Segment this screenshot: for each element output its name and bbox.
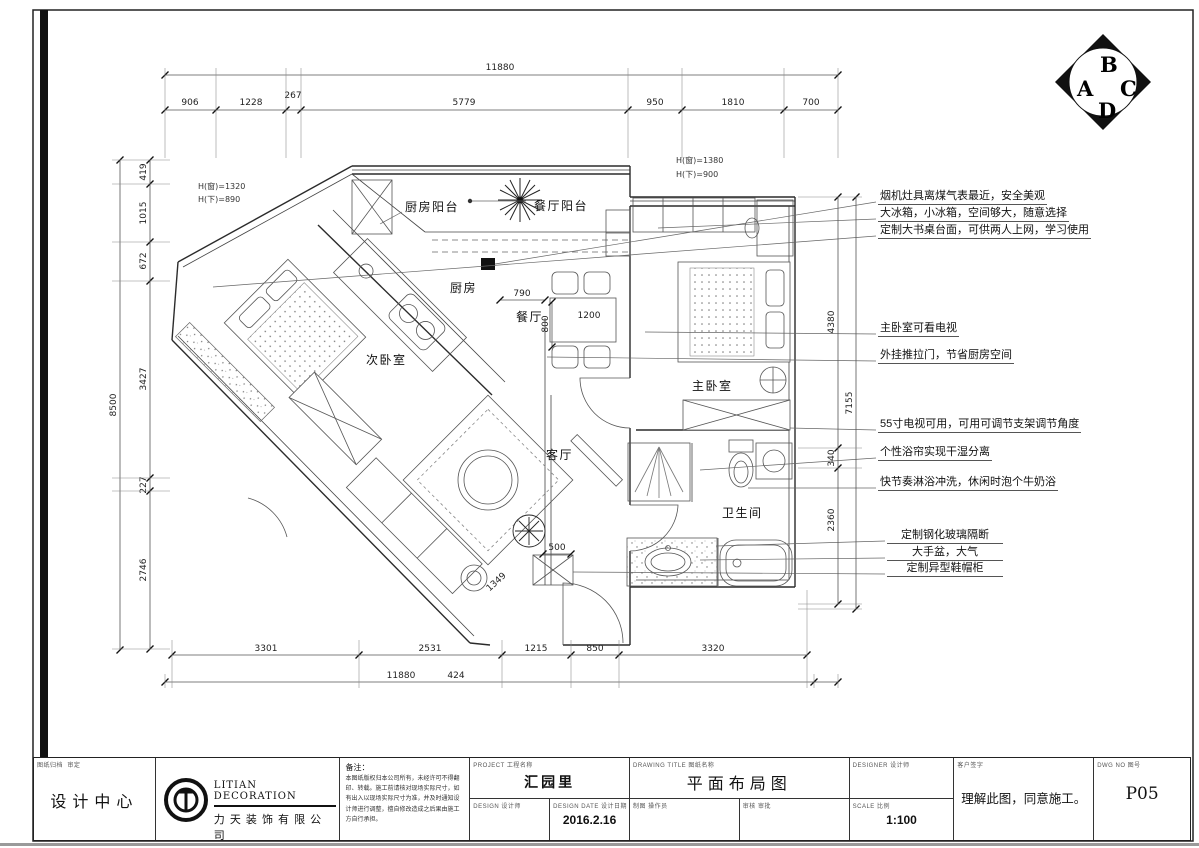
- signature-label: 客户签字: [957, 760, 983, 769]
- wardrobe: [633, 198, 755, 232]
- kitchen-balcony-fixtures: [352, 180, 392, 234]
- dim-right-seg: 2360: [827, 508, 837, 531]
- compass-letter-a: A: [1076, 76, 1094, 101]
- titleblock-scale-cell: DESIGNER 设计师 SCALE 比例 1:100: [850, 758, 955, 840]
- dim-bottom-seg: 3301: [255, 644, 278, 654]
- checker-label: 审核 审批: [743, 801, 771, 810]
- signature-text: 理解此图，同意施工。: [954, 788, 1093, 807]
- scale-label: SCALE 比例: [853, 801, 890, 810]
- dim-right-seg: 340: [827, 449, 837, 466]
- drawing-sheet: A B C D: [0, 0, 1199, 848]
- room-label-master-bedroom: 主卧室: [692, 378, 733, 393]
- annotation-3: 定制大书桌台面，可供两人上网，学习使用: [878, 223, 1091, 239]
- dim-bottom-extra: 424: [447, 671, 464, 681]
- dim-top-total: 11880: [486, 63, 515, 73]
- binding-bar: [40, 10, 48, 757]
- annotation-9: 定制钢化玻璃隔断: [887, 528, 1003, 544]
- dim-top-seg: 906: [181, 98, 198, 108]
- annotation-7: 个性浴帘实现干湿分离: [878, 445, 992, 461]
- window-note: H(窗)=1320: [198, 181, 245, 191]
- dim-bottom-seg: 1215: [525, 644, 548, 654]
- annotation-2: 大冰箱，小冰箱，空间够大，随意选择: [878, 206, 1069, 222]
- dim-right-seg: 4380: [827, 310, 837, 333]
- toilet: [729, 453, 753, 487]
- dim-left-seg: 672: [139, 252, 149, 269]
- dim-left-seg: 2746: [139, 558, 149, 581]
- company-logo: [164, 778, 208, 822]
- sheet-shadow: [0, 843, 1199, 846]
- dim-top-seg: 267: [284, 91, 301, 101]
- design-date: 2016.2.16: [550, 813, 629, 827]
- date-cell: DESIGN DATE 设计日期 2016.2.16: [550, 799, 629, 840]
- toilet-tank: [729, 440, 753, 452]
- dim-bottom-seg: 3320: [702, 644, 725, 654]
- annotation-4: 主卧室可看电视: [878, 321, 959, 337]
- scale-value: 1:100: [850, 813, 954, 827]
- window-note: H(下)=900: [676, 170, 718, 179]
- window-note: H(窗)=1380: [676, 155, 723, 165]
- annotation-6: 55寸电视可用，可用可调节支架调节角度: [878, 417, 1081, 433]
- annotation-10: 大手盆，大气: [887, 545, 1003, 561]
- titleblock-signature-cell: 客户签字 理解此图，同意施工。: [954, 758, 1094, 840]
- dim-left-seg: 419: [139, 163, 149, 180]
- dim-top-seg: 1810: [722, 98, 745, 108]
- dim-left-seg: 3427: [139, 368, 149, 391]
- project-name: 汇园里: [470, 772, 629, 792]
- dim-top-seg: 5779: [453, 98, 476, 108]
- compass-letter-d: D: [1098, 98, 1116, 123]
- room-label-living: 客厅: [546, 447, 573, 462]
- room-label-bathroom: 卫生间: [722, 506, 763, 520]
- notes-text: 本图纸版权归本公司所有，未经许可不得翻印、转载。施工前请核对现场实际尺寸，如有出…: [345, 774, 464, 825]
- titleblock-dwgno-cell: DWG NO 图号 P05: [1094, 758, 1190, 840]
- titleblock-project-cell: PROJECT 工程名称 汇园里 DESIGN 设计师 DESIGN DATE …: [470, 758, 630, 840]
- titleblock-company-cell: LITIAN DECORATION 力 天 装 饰 有 限 公 司: [156, 758, 341, 840]
- designer-label: DESIGN 设计师: [473, 801, 521, 810]
- compass-letter-c: C: [1120, 76, 1137, 101]
- dept-name: 设计中心: [34, 788, 155, 812]
- titleblock-notes-cell: 备注： 本图纸版权归本公司所有，未经许可不得翻印、转载。施工前请核对现场实际尺寸…: [340, 758, 470, 840]
- compass-letter-b: B: [1100, 52, 1118, 77]
- designer2-label: DESIGNER 设计师: [853, 760, 910, 769]
- room-label-dining-balcony: 餐厅阳台: [534, 198, 588, 213]
- dim-left-seg: 1015: [139, 202, 149, 225]
- dim-inner: 790: [513, 289, 530, 299]
- titleblock-title-cell: DRAWING TITLE 图纸名称 平面布局图 制图 操作员 审核 审批: [630, 758, 850, 840]
- gas-meter: [481, 258, 495, 270]
- dim-top-seg: 950: [646, 98, 663, 108]
- room-label-kitchen-balcony: 厨房阳台: [405, 199, 459, 214]
- title-block: 图纸归档 审定 设计中心 LITIAN DECORATION 力 天 装 饰 有…: [33, 757, 1191, 841]
- entrance-door: [563, 583, 623, 645]
- master-bedroom-furniture: [633, 198, 793, 430]
- archive-label: 图纸归档: [37, 763, 63, 769]
- annotation-1: 烟机灶具离煤气表最近，安全美观: [878, 189, 1047, 205]
- second-bedroom-door: [248, 498, 287, 537]
- dim-top-seg: 700: [802, 98, 819, 108]
- orientation-compass: A B C D: [1055, 34, 1151, 130]
- drawing-title: 平面布局图: [630, 770, 849, 794]
- company-name-en: LITIAN DECORATION: [214, 780, 336, 807]
- master-bedroom-door: [580, 378, 630, 428]
- living-room-furniture: [346, 395, 622, 593]
- drawing-title-label: DRAWING TITLE 图纸名称: [633, 760, 714, 769]
- dim-left-total: 8500: [109, 393, 119, 416]
- dim-bottom-seg: 2531: [419, 644, 442, 654]
- dim-bottom-seg: 850: [586, 644, 603, 654]
- dwg-no-label: DWG NO 图号: [1097, 760, 1141, 769]
- dim-bottom-total: 11880: [387, 671, 416, 681]
- tv: [571, 435, 623, 487]
- company-name-cn: 力 天 装 饰 有 限 公 司: [214, 811, 336, 843]
- annotation-11: 定制异型鞋帽柜: [887, 561, 1003, 577]
- basin: [645, 548, 691, 576]
- room-label-kitchen: 厨房: [450, 280, 477, 295]
- room-label-dining: 餐厅: [516, 309, 543, 324]
- desk: [757, 200, 793, 256]
- project-label: PROJECT 工程名称: [473, 760, 533, 769]
- washing-machine: [756, 443, 792, 479]
- dim-inner: 1349: [485, 571, 509, 594]
- dim-inner: 1200: [578, 311, 601, 321]
- approve-label: 审定: [67, 763, 80, 769]
- annotation-8: 快节奏淋浴冲洗，休闲时泡个牛奶浴: [878, 475, 1058, 491]
- checker-cell: 审核 审批: [740, 799, 849, 840]
- dim-top-seg: 1228: [240, 98, 263, 108]
- notes-label: 备注：: [345, 762, 369, 773]
- dining-set: [550, 210, 630, 368]
- designer-cell: DESIGN 设计师: [470, 799, 550, 840]
- dwg-no: P05: [1094, 784, 1190, 804]
- dim-right-seg: 7155: [845, 392, 855, 415]
- dim-inner: 500: [548, 543, 565, 553]
- date-label: DESIGN DATE 设计日期: [553, 801, 627, 810]
- living-plant: [513, 515, 545, 547]
- bathroom-fixtures: [627, 440, 792, 586]
- annotation-5: 外挂推拉门，节省厨房空间: [878, 348, 1014, 364]
- draftsman-label: 制图 操作员: [633, 801, 668, 810]
- window-note: H(下)=890: [198, 195, 240, 204]
- room-label-second-bedroom: 次卧室: [366, 352, 407, 367]
- scale-cell: SCALE 比例 1:100: [850, 799, 954, 840]
- draftsman-cell: 制图 操作员: [630, 799, 740, 840]
- titleblock-dept-cell: 图纸归档 审定 设计中心: [34, 758, 156, 840]
